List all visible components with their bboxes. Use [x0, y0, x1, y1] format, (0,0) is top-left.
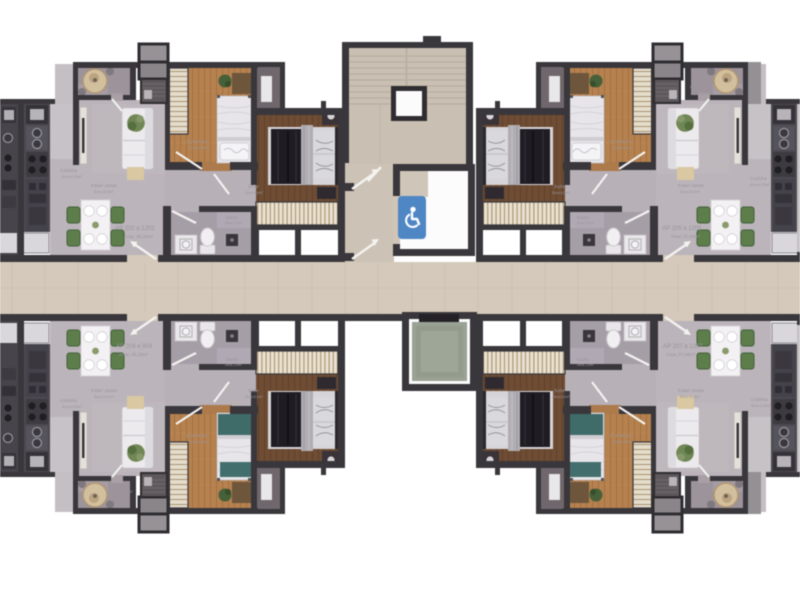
svg-text:Varanda: Varanda [692, 483, 709, 488]
svg-text:Suíte: Suíte [248, 388, 259, 393]
svg-text:Área: 46,16m²: Área: 46,16m² [124, 233, 154, 239]
svg-text:Suíte: Suíte [554, 184, 565, 189]
svg-text:Cozinha: Cozinha [751, 397, 768, 402]
svg-text:Área 8,0m²: Área 8,0m² [245, 191, 264, 195]
svg-text:Dormitório: Dormitório [186, 139, 208, 144]
svg-text:AP 207 à 1207: AP 207 à 1207 [663, 344, 703, 350]
svg-text:AP 202 a 1202: AP 202 a 1202 [115, 226, 155, 232]
svg-text:Área 10,5m²: Área 10,5m² [94, 395, 115, 399]
svg-text:Área 4,20m²: Área 4,20m² [62, 405, 83, 409]
svg-text:Banho: Banho [226, 357, 239, 362]
svg-text:Área 4,20m²: Área 4,20m² [750, 183, 771, 187]
svg-text:Dormitório: Dormitório [610, 433, 632, 438]
svg-text:Suíte: Suíte [554, 388, 565, 393]
svg-text:Área 2,50m²: Área 2,50m² [113, 490, 134, 494]
svg-text:Área 4,20m²: Área 4,20m² [751, 404, 772, 408]
svg-text:Estar/ Jantar: Estar/ Jantar [91, 388, 118, 393]
svg-text:AP 205 à 1205: AP 205 à 1205 [662, 226, 702, 232]
svg-text:Área 6,50m²: Área 6,50m² [612, 440, 633, 444]
svg-text:Varanda: Varanda [690, 85, 707, 90]
svg-text:Área 2,4m²: Área 2,4m² [225, 363, 243, 367]
svg-text:Dormitório: Dormitório [186, 433, 208, 438]
svg-text:Estar/ Jantar: Estar/ Jantar [678, 183, 705, 188]
svg-text:Área 8,0m²: Área 8,0m² [552, 395, 571, 399]
svg-text:Área 10,5m²: Área 10,5m² [94, 190, 115, 194]
svg-text:Cozinha: Cozinha [750, 176, 767, 181]
svg-text:Área: 47,06m²: Área: 47,06m² [671, 233, 701, 239]
svg-text:Banho: Banho [577, 357, 590, 362]
svg-text:Área: 47,06m²: Área: 47,06m² [666, 351, 696, 357]
svg-text:AP 204 e 904: AP 204 e 904 [116, 344, 153, 350]
svg-text:Cozinha: Cozinha [60, 168, 77, 173]
svg-text:Área 2,4m²: Área 2,4m² [577, 363, 595, 367]
svg-text:Banho: Banho [577, 215, 590, 220]
svg-text:Varanda: Varanda [104, 85, 121, 90]
svg-text:Área 8,0m²: Área 8,0m² [552, 191, 571, 195]
svg-text:Banho: Banho [226, 215, 239, 220]
svg-text:Estar/ Jantar: Estar/ Jantar [91, 183, 118, 188]
svg-text:Área 6,50m²: Área 6,50m² [612, 146, 633, 150]
svg-text:Suíte: Suíte [248, 184, 259, 189]
svg-text:Área: 46,16m²: Área: 46,16m² [119, 351, 149, 357]
svg-text:Área 2,50m²: Área 2,50m² [106, 92, 127, 96]
svg-text:Área 2,4m²: Área 2,4m² [225, 221, 243, 225]
svg-text:Área 10,5m²: Área 10,5m² [680, 395, 701, 399]
svg-text:Área 2,4m²: Área 2,4m² [577, 221, 595, 225]
svg-text:Varanda: Varanda [112, 483, 129, 488]
svg-text:Cozinha: Cozinha [60, 398, 77, 403]
svg-text:Área 4,20m²: Área 4,20m² [62, 175, 83, 179]
svg-text:Área 8,0m²: Área 8,0m² [245, 395, 264, 399]
svg-text:Área 2,50m²: Área 2,50m² [691, 92, 712, 96]
svg-text:Área 6,50m²: Área 6,50m² [189, 146, 210, 150]
svg-text:Dormitório: Dormitório [610, 139, 632, 144]
svg-text:Estar/ Jantar: Estar/ Jantar [678, 388, 705, 393]
svg-text:Área 6,50m²: Área 6,50m² [189, 440, 210, 444]
svg-text:Área 10,5m²: Área 10,5m² [680, 190, 701, 194]
svg-text:Área 2,50m²: Área 2,50m² [693, 490, 714, 494]
